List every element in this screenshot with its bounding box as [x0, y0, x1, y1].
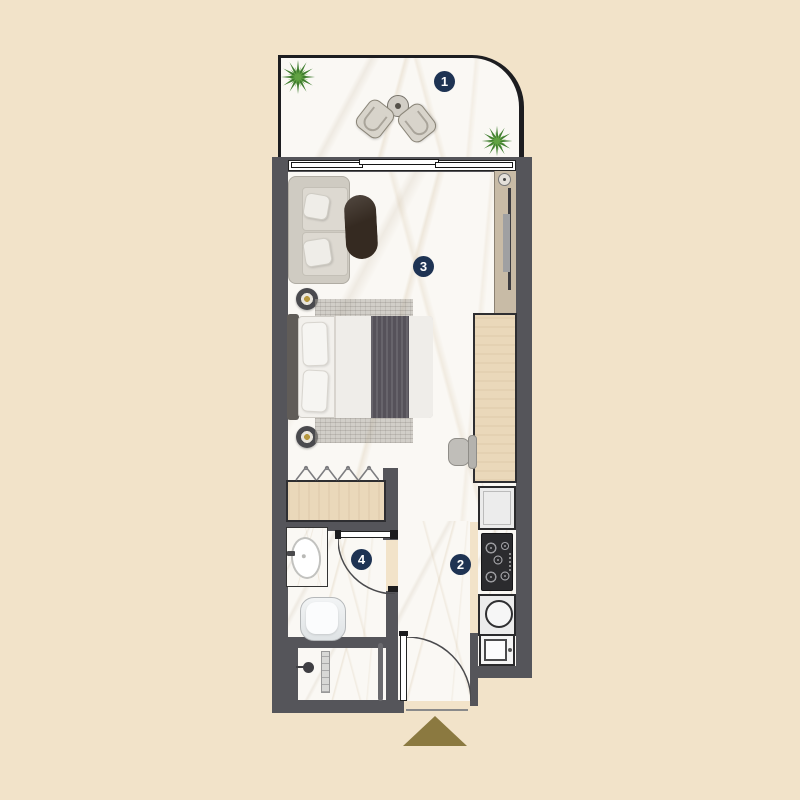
- wall: [516, 157, 532, 678]
- shower-floor: [298, 648, 386, 701]
- floor-plan-canvas: 1 2 3 4: [0, 0, 800, 800]
- bed-pillow: [301, 322, 329, 367]
- chair-back: [404, 110, 432, 138]
- door-frame-post: [399, 631, 408, 636]
- shower-head-icon: [303, 662, 314, 673]
- door-frame-post: [390, 530, 398, 539]
- sofa-pillow: [302, 237, 333, 268]
- quarter-arc-door-icon: [407, 637, 471, 701]
- wall: [272, 157, 288, 713]
- desk-counter: [473, 313, 517, 483]
- toilet: [300, 597, 346, 641]
- wall: [474, 666, 532, 678]
- room-label-bathroom: 4: [351, 549, 372, 570]
- desk-chair-back: [468, 435, 477, 469]
- door-frame-post: [335, 530, 341, 539]
- window-pane: [359, 159, 439, 165]
- shower-glass-panel: [378, 643, 383, 701]
- shower-drain: [321, 651, 330, 693]
- chair-back: [360, 106, 388, 134]
- wardrobe-hanger-icon: [337, 465, 379, 481]
- coffee-table: [343, 194, 378, 260]
- window-pane: [435, 162, 513, 168]
- wall: [470, 633, 478, 706]
- room-label-living: 3: [413, 256, 434, 277]
- plant-icon: [479, 123, 515, 159]
- speaker-icon: [498, 173, 511, 186]
- tv-console: [503, 214, 510, 272]
- wardrobe-hanger-icon: [295, 465, 337, 481]
- bed-throw-blanket: [371, 316, 409, 418]
- sofa: [288, 176, 350, 284]
- door-threshold: [406, 709, 468, 711]
- wardrobe: [286, 480, 386, 522]
- room-label-balcony: 1: [434, 71, 455, 92]
- plant-icon: [278, 57, 318, 97]
- bed-pillow: [301, 369, 329, 412]
- kitchen-sink: [479, 634, 515, 666]
- window-pane: [291, 162, 363, 168]
- sofa-pillow: [302, 192, 331, 221]
- washing-machine: [478, 594, 516, 636]
- cooktop: [481, 533, 513, 591]
- bathroom-door: [337, 531, 395, 538]
- entrance-door: [400, 635, 407, 701]
- wall: [386, 591, 398, 703]
- desk-chair: [448, 438, 470, 466]
- room-label-kitchen: 2: [450, 554, 471, 575]
- fridge: [478, 486, 516, 530]
- entrance-arrow-icon: [403, 716, 467, 746]
- door-frame-post: [388, 586, 398, 592]
- faucet-icon: [287, 551, 295, 556]
